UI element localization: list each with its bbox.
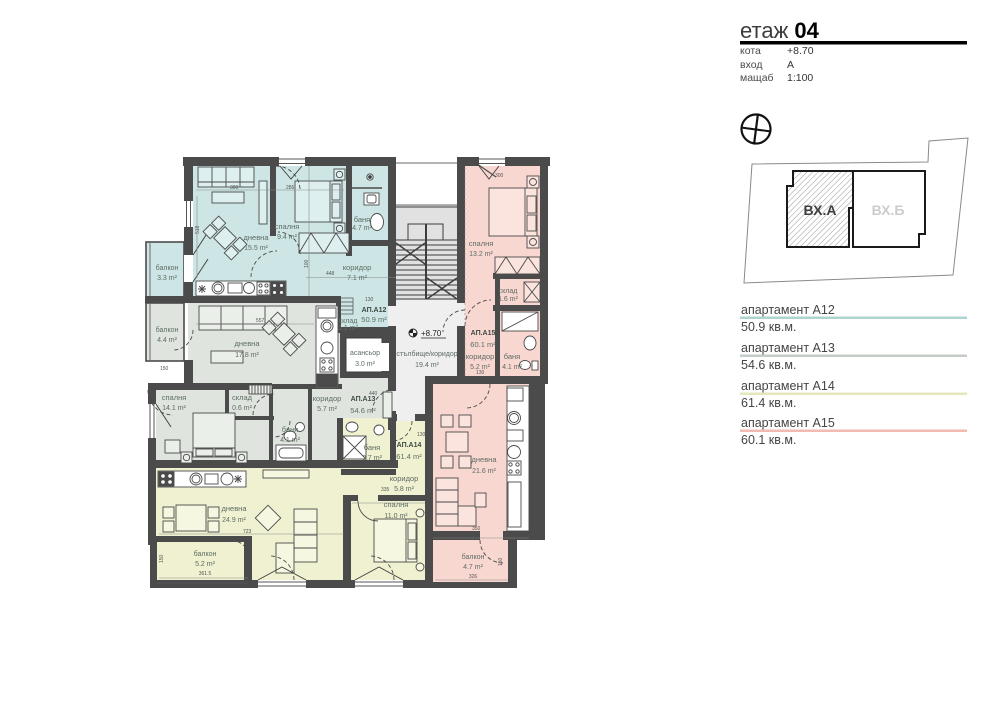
- svg-text:54.6 m²: 54.6 m²: [350, 406, 376, 415]
- svg-text:ВХ.Б: ВХ.Б: [872, 202, 905, 218]
- svg-text:14.1 m²: 14.1 m²: [162, 405, 186, 412]
- svg-text:балкон: балкон: [156, 326, 179, 334]
- svg-text:335: 335: [381, 487, 390, 493]
- svg-text:21.6 m²: 21.6 m²: [472, 468, 496, 475]
- svg-text:60.1 кв.м.: 60.1 кв.м.: [741, 433, 796, 447]
- svg-text:спалня: спалня: [384, 500, 409, 509]
- svg-text:асансьор: асансьор: [350, 350, 380, 357]
- svg-text:1.6 m²: 1.6 m²: [498, 296, 519, 303]
- svg-text:склад: склад: [232, 393, 253, 402]
- svg-text:стълбище/коридор: стълбище/коридор: [396, 350, 457, 358]
- svg-text:кота: кота: [740, 45, 761, 57]
- svg-text:150: 150: [498, 557, 504, 566]
- svg-text:баня: баня: [282, 425, 299, 434]
- svg-text:100: 100: [304, 259, 310, 268]
- svg-text:апартамент А14: апартамент А14: [741, 379, 835, 393]
- svg-text:0.6 m²: 0.6 m²: [232, 405, 253, 412]
- svg-text:склад: склад: [339, 318, 358, 325]
- svg-text:130: 130: [417, 432, 426, 438]
- svg-text:спалня: спалня: [275, 222, 300, 231]
- svg-text:3.0 m²: 3.0 m²: [355, 361, 376, 368]
- svg-text:4.1 m²: 4.1 m²: [502, 364, 523, 371]
- svg-text:коридор: коридор: [313, 394, 342, 403]
- svg-text:60.1 m²: 60.1 m²: [470, 340, 496, 349]
- svg-text:+8.70: +8.70: [421, 329, 442, 338]
- svg-text:+8.70: +8.70: [787, 45, 814, 57]
- svg-text:15.5 m²: 15.5 m²: [244, 245, 268, 252]
- svg-text:4.7 m²: 4.7 m²: [352, 225, 373, 232]
- svg-text:5.8 m²: 5.8 m²: [394, 486, 415, 493]
- svg-text:24.9 m²: 24.9 m²: [222, 517, 246, 524]
- svg-text:5.7 m²: 5.7 m²: [317, 406, 338, 413]
- svg-text:350: 350: [472, 526, 481, 532]
- svg-text:балкон: балкон: [194, 550, 217, 558]
- svg-text:АП.А13: АП.А13: [351, 396, 376, 403]
- svg-text:спалня: спалня: [469, 239, 494, 248]
- svg-text:дневна: дневна: [222, 504, 248, 513]
- svg-text:дневна: дневна: [235, 339, 261, 348]
- svg-text:50.9 кв.м.: 50.9 кв.м.: [741, 320, 796, 334]
- svg-text:апартамент А15: апартамент А15: [741, 416, 835, 430]
- svg-text:7.1 m²: 7.1 m²: [347, 275, 368, 282]
- svg-text:дневна: дневна: [244, 233, 270, 242]
- svg-text:балкон: балкон: [156, 264, 179, 272]
- svg-text:коридор: коридор: [466, 352, 495, 361]
- svg-text:361.5: 361.5: [199, 571, 212, 577]
- svg-text:61.4 кв.м.: 61.4 кв.м.: [741, 396, 796, 410]
- svg-text:300: 300: [495, 173, 504, 179]
- svg-text:апартамент А12: апартамент А12: [741, 303, 835, 317]
- svg-text:286: 286: [286, 185, 295, 191]
- svg-text:баня: баня: [364, 443, 381, 452]
- svg-text:1.1 m²: 1.1 m²: [338, 325, 359, 332]
- svg-text:19.4 m²: 19.4 m²: [415, 362, 439, 369]
- svg-text:11.0 m²: 11.0 m²: [384, 513, 408, 520]
- svg-text:54.6 кв.м.: 54.6 кв.м.: [741, 358, 796, 372]
- svg-text:150: 150: [160, 366, 169, 372]
- svg-text:коридор: коридор: [343, 263, 372, 272]
- svg-text:150: 150: [159, 554, 165, 563]
- svg-text:АП.А15: АП.А15: [471, 330, 496, 337]
- svg-text:етаж 04: етаж 04: [740, 18, 820, 43]
- svg-text:3.3 m²: 3.3 m²: [157, 275, 178, 282]
- svg-text:326: 326: [469, 574, 478, 580]
- svg-text:А: А: [787, 59, 794, 71]
- svg-text:1:100: 1:100: [787, 72, 813, 84]
- svg-text:13.2 m²: 13.2 m²: [469, 251, 493, 258]
- svg-text:4.1 m²: 4.1 m²: [280, 437, 301, 444]
- svg-text:50.9 m²: 50.9 m²: [361, 315, 387, 324]
- svg-text:коридор: коридор: [390, 474, 419, 483]
- svg-text:дневна: дневна: [472, 455, 498, 464]
- svg-text:518: 518: [195, 225, 201, 234]
- svg-text:склад: склад: [499, 288, 518, 295]
- svg-text:АП.А14: АП.А14: [397, 442, 422, 449]
- svg-text:557: 557: [256, 318, 265, 324]
- svg-text:спалня: спалня: [162, 393, 187, 402]
- svg-text:61.4 m²: 61.4 m²: [396, 452, 422, 461]
- svg-text:5.2 m²: 5.2 m²: [195, 561, 216, 568]
- svg-text:баня: баня: [354, 215, 371, 224]
- svg-text:448: 448: [326, 271, 335, 277]
- svg-text:4.7 m²: 4.7 m²: [463, 564, 484, 571]
- svg-text:130: 130: [365, 297, 374, 303]
- svg-text:9.4 m²: 9.4 m²: [277, 234, 298, 241]
- svg-text:723: 723: [243, 529, 252, 535]
- svg-text:мащаб: мащаб: [740, 72, 774, 84]
- svg-text:300: 300: [230, 185, 239, 191]
- svg-text:апартамент А13: апартамент А13: [741, 341, 835, 355]
- svg-text:АП.А12: АП.А12: [362, 307, 387, 314]
- svg-text:3.7 m²: 3.7 m²: [362, 455, 383, 462]
- svg-text:5.2 m²: 5.2 m²: [470, 364, 491, 371]
- svg-text:4.4 m²: 4.4 m²: [157, 337, 178, 344]
- svg-text:балкон: балкон: [462, 553, 485, 561]
- svg-text:17.8 m²: 17.8 m²: [235, 352, 259, 359]
- svg-text:вход: вход: [740, 59, 762, 71]
- svg-text:ВХ.А: ВХ.А: [804, 202, 837, 218]
- svg-text:баня: баня: [504, 352, 521, 361]
